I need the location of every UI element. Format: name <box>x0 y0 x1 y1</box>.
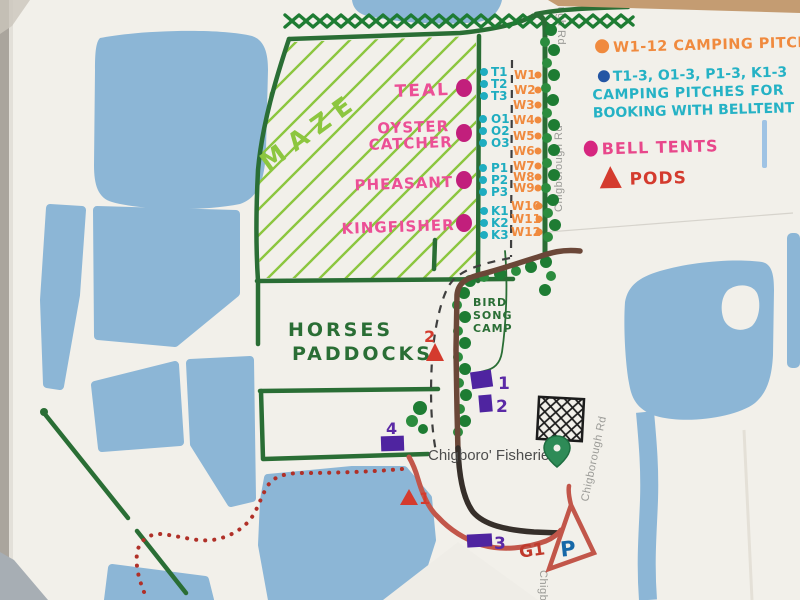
svg-text:K3: K3 <box>491 228 509 242</box>
lake-right-edge <box>787 233 800 368</box>
group-name-catcher: CATCHER <box>368 133 453 154</box>
square-1-label: 1 <box>498 374 510 394</box>
lake-right-stream <box>645 412 649 600</box>
road-label-bottom: Chigborough Rd <box>537 570 549 600</box>
map-pin-hole <box>554 445 561 452</box>
parking-label: P <box>559 536 577 561</box>
fence-connector <box>434 240 435 269</box>
svg-text:O3: O3 <box>491 136 510 150</box>
bird-camp-line2: SONG <box>473 309 513 322</box>
lake-right-big <box>624 260 774 419</box>
lake-top-left <box>94 31 268 209</box>
paddock-fence-left-lower <box>261 391 263 459</box>
horses-paddocks-line2: PADDOCKS <box>292 343 433 365</box>
svg-text:W4: W4 <box>513 113 535 127</box>
square-4-label: 4 <box>386 419 397 438</box>
pod-1-label: 1 <box>419 489 430 508</box>
pod-2-label: 2 <box>424 327 435 346</box>
fisheries-label: Chigboro' Fisheries <box>428 447 557 464</box>
lake-island <box>722 285 760 329</box>
svg-text:W1: W1 <box>514 68 536 82</box>
square-3-label: 3 <box>494 534 506 554</box>
svg-text:W2: W2 <box>514 83 536 97</box>
lake-bottom-big <box>262 470 432 600</box>
paddock-fence-middle <box>260 389 438 391</box>
legend-pods: PODS <box>629 168 687 189</box>
bird-camp-line3: CAMP <box>473 322 513 335</box>
square-1 <box>470 370 493 390</box>
svg-text:W5: W5 <box>513 129 535 143</box>
svg-text:T3: T3 <box>491 89 508 103</box>
svg-text:W6: W6 <box>513 144 535 158</box>
group-name-pheasant: PHEASANT <box>354 173 453 194</box>
legend-bell-tents: BELL TENTS <box>602 136 719 158</box>
horses-paddocks-line1: HORSES <box>288 319 393 341</box>
svg-text:W3: W3 <box>513 98 535 112</box>
square-3 <box>467 533 493 547</box>
svg-text:W9: W9 <box>513 181 535 195</box>
bird-camp-line1: BIRD <box>473 296 507 309</box>
legend-blue-stream <box>762 120 767 168</box>
maze-border-right <box>478 36 479 281</box>
campsite-map-photo: Chigborough Rd Chigborough Rd Chigboroug… <box>0 0 800 600</box>
group-name-teal: TEAL <box>394 80 450 102</box>
svg-text:P3: P3 <box>491 185 508 199</box>
gate-label: G1 <box>518 539 546 562</box>
square-2 <box>478 394 492 412</box>
square-2-label: 2 <box>496 397 508 417</box>
map-canvas: Chigborough Rd Chigborough Rd Chigboroug… <box>0 0 800 600</box>
crosshatch-building <box>537 397 584 441</box>
path-end-dot <box>40 408 48 416</box>
